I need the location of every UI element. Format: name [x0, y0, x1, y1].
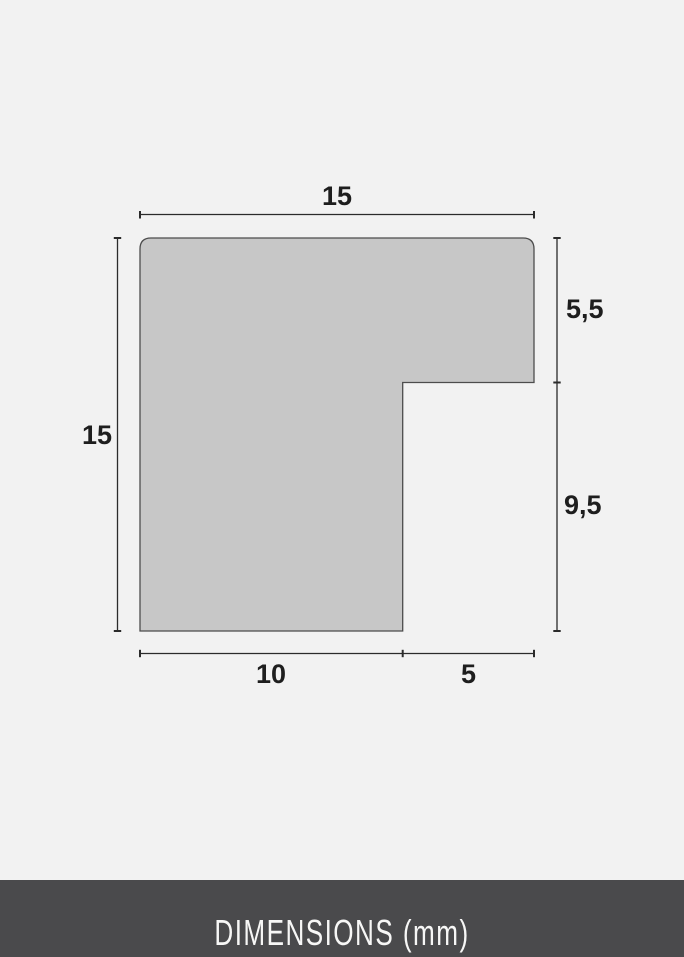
svg-text:5: 5: [461, 659, 476, 689]
svg-text:15: 15: [82, 420, 112, 450]
svg-text:5,5: 5,5: [566, 294, 604, 324]
svg-text:9,5: 9,5: [564, 490, 602, 520]
svg-text:10: 10: [256, 659, 286, 689]
svg-text:15: 15: [322, 181, 352, 211]
